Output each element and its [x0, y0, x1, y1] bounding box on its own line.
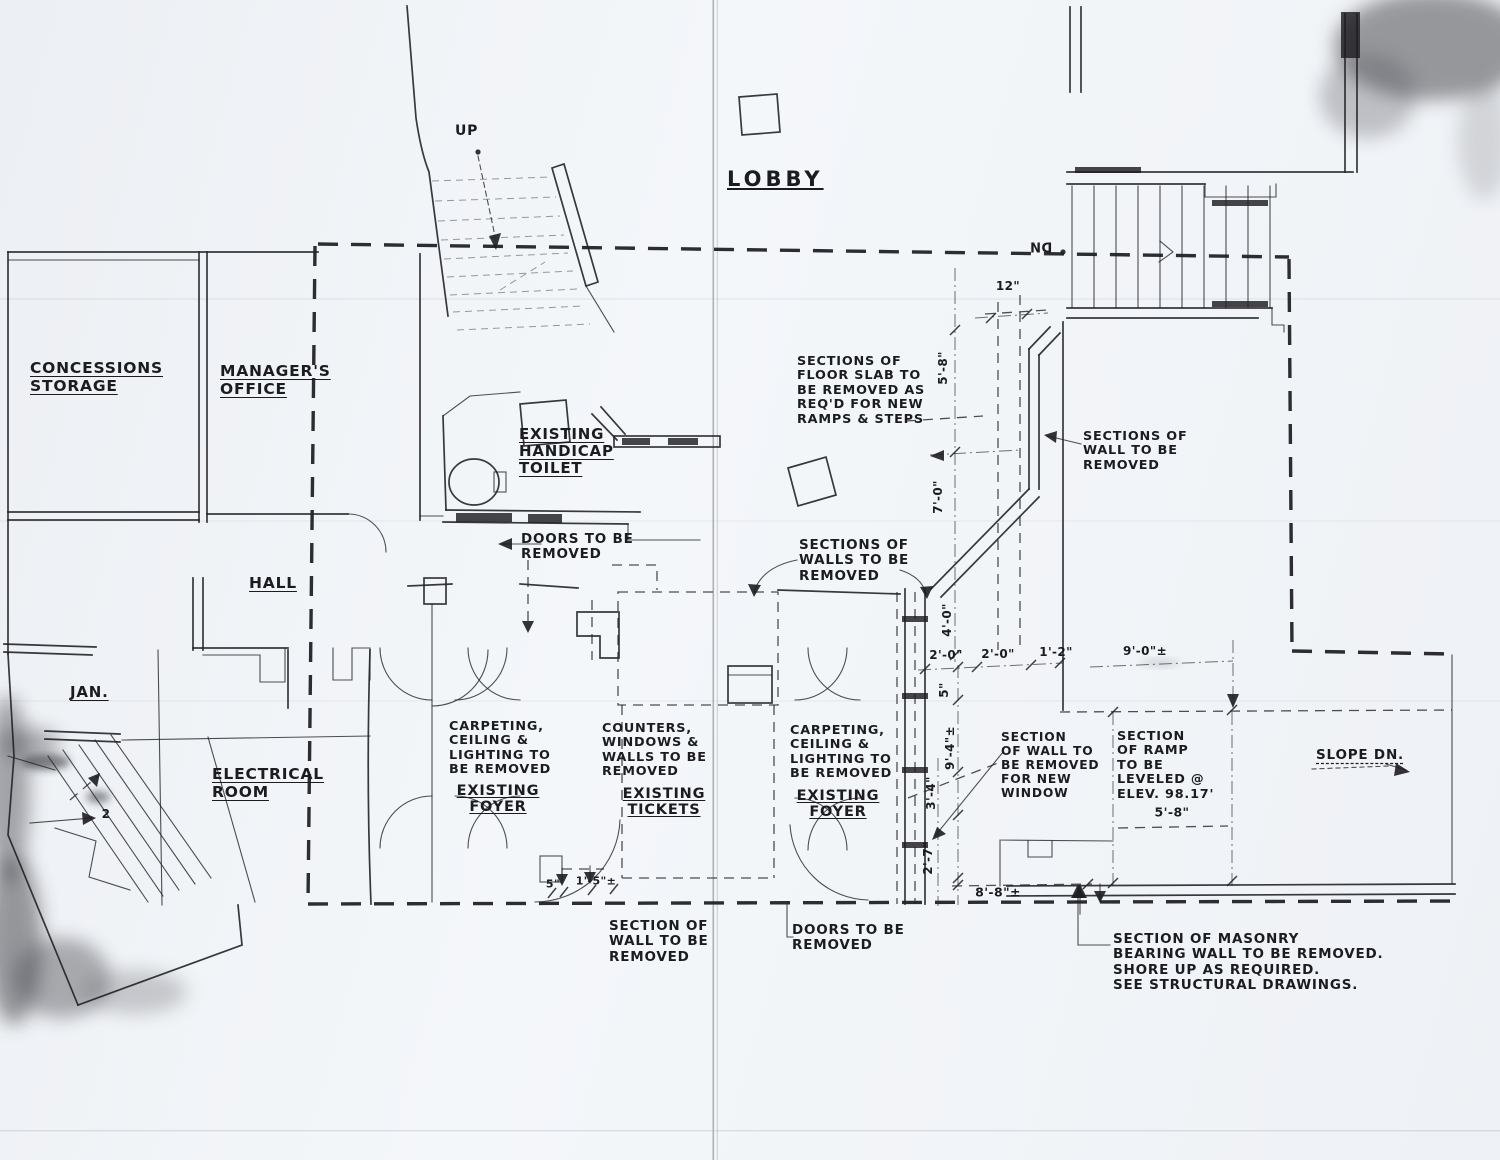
stair-step-note: 2 — [102, 807, 111, 821]
annotation-foyer-right-note: CARPETING, CEILING & LIGHTING TO BE REMO… — [790, 724, 892, 782]
room-label-foyer-left: EXISTING FOYER — [452, 783, 544, 816]
annotation-masonry: SECTION OF MASONRY BEARING WALL TO BE RE… — [1113, 932, 1383, 993]
annotation-walls-removed-mid: SECTIONS OF WALLS TO BE REMOVED — [799, 538, 909, 584]
annotation-floor-slab: SECTIONS OF FLOOR SLAB TO BE REMOVED AS … — [797, 355, 925, 427]
annotation-tickets-note: COUNTERS, WINDOWS & WALLS TO BE REMOVED — [602, 722, 707, 780]
annotation-ramp-dim: 5'-8" — [1155, 805, 1190, 820]
annotation-wall-removed-right: SECTIONS OF WALL TO BE REMOVED — [1083, 430, 1188, 473]
dimension-1ft5: 1'-5"± — [576, 875, 617, 888]
annotation-doors-removed-top: DOORS TO BE REMOVED — [521, 532, 634, 563]
rotated-column — [788, 457, 836, 506]
floorplan-sheet: .w{stroke:#232327;stroke-width:1.7;fill:… — [0, 0, 1500, 1160]
room-label-foyer-right: EXISTING FOYER — [792, 788, 884, 821]
room-label-hall: HALL — [249, 575, 297, 593]
annotation-foyer-left-note: CARPETING, CEILING & LIGHTING TO BE REMO… — [449, 720, 551, 778]
dimension-12in: 12" — [996, 279, 1020, 293]
slope-dn-label: SLOPE DN. — [1316, 748, 1404, 763]
dimension-9ft4: 9'-4"± — [943, 726, 957, 770]
dn-stair-label: DN — [1030, 239, 1052, 254]
dimension-5in-a: 5" — [937, 682, 951, 697]
room-label-concessions-storage: CONCESSIONS STORAGE — [30, 360, 163, 395]
room-label-jan: JAN. — [70, 684, 109, 701]
dimension-2ft7: 2'-7" — [921, 841, 935, 875]
dimension-8ft8: 8'-8"± — [975, 885, 1021, 900]
room-label-managers-office: MANAGER'S OFFICE — [220, 363, 331, 398]
room-label-electrical: ELECTRICAL ROOM — [212, 766, 324, 801]
up-stair-label: UP — [455, 124, 478, 140]
dimension-2ft0-b: 2'-0" — [981, 647, 1015, 661]
photocopy-smudges — [0, 0, 1500, 1025]
left-rooms-walls — [4, 252, 443, 905]
dimension-1ft2: 1'-2" — [1039, 645, 1073, 659]
dimension-2ft0-a: 2'-0" — [929, 648, 963, 662]
dimension-4ft0: 4'-0" — [940, 603, 954, 637]
dimension-5in-b: 5" — [546, 878, 560, 891]
lobby-column — [739, 94, 780, 135]
upper-right-stair — [1060, 7, 1360, 332]
room-label-tickets: EXISTING TICKETS — [608, 786, 720, 819]
dimension-9ft0: 9'-0"± — [1123, 644, 1167, 658]
room-label-lobby: LOBBY — [727, 168, 824, 192]
annotation-window-wall: SECTION OF WALL TO BE REMOVED FOR NEW WI… — [1001, 731, 1099, 800]
annotation-wall-removed-bottom: SECTION OF WALL TO BE REMOVED — [609, 919, 709, 965]
annotation-ramp: SECTION OF RAMP TO BE LEVELED @ ELEV. 98… — [1117, 730, 1214, 802]
dimension-5ft8: 5'-8" — [936, 351, 950, 385]
upper-left-stair — [407, 6, 614, 332]
dimension-7ft0: 7'-0" — [931, 480, 945, 514]
dimension-3ft4: 3'-4" — [924, 776, 938, 810]
annotation-doors-removed-bottom: DOORS TO BE REMOVED — [792, 923, 905, 954]
room-label-handicap-toilet: EXISTING HANDICAP TOILET — [519, 426, 614, 477]
